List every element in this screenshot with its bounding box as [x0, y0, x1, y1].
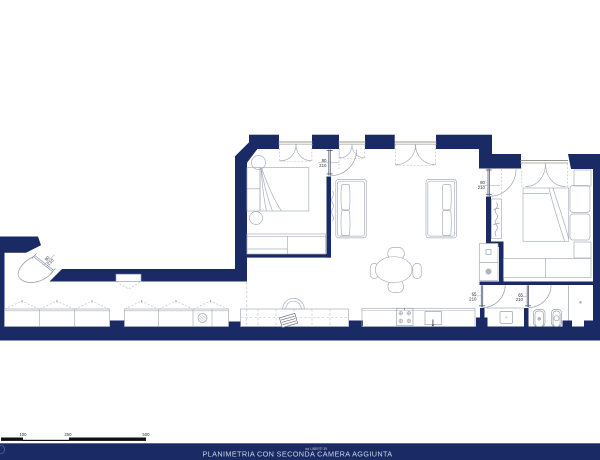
- svg-text:100: 100: [19, 432, 27, 437]
- svg-text:210: 210: [469, 296, 477, 301]
- svg-text:500: 500: [142, 432, 150, 437]
- svg-text:PLANIMETRIA CON SECONDA CAMERA: PLANIMETRIA CON SECONDA CAMERA AGGIUNTA: [203, 450, 393, 459]
- svg-text:250: 250: [64, 432, 72, 437]
- svg-text:210: 210: [478, 185, 486, 190]
- svg-text:210: 210: [319, 163, 327, 168]
- svg-text:210: 210: [516, 297, 524, 302]
